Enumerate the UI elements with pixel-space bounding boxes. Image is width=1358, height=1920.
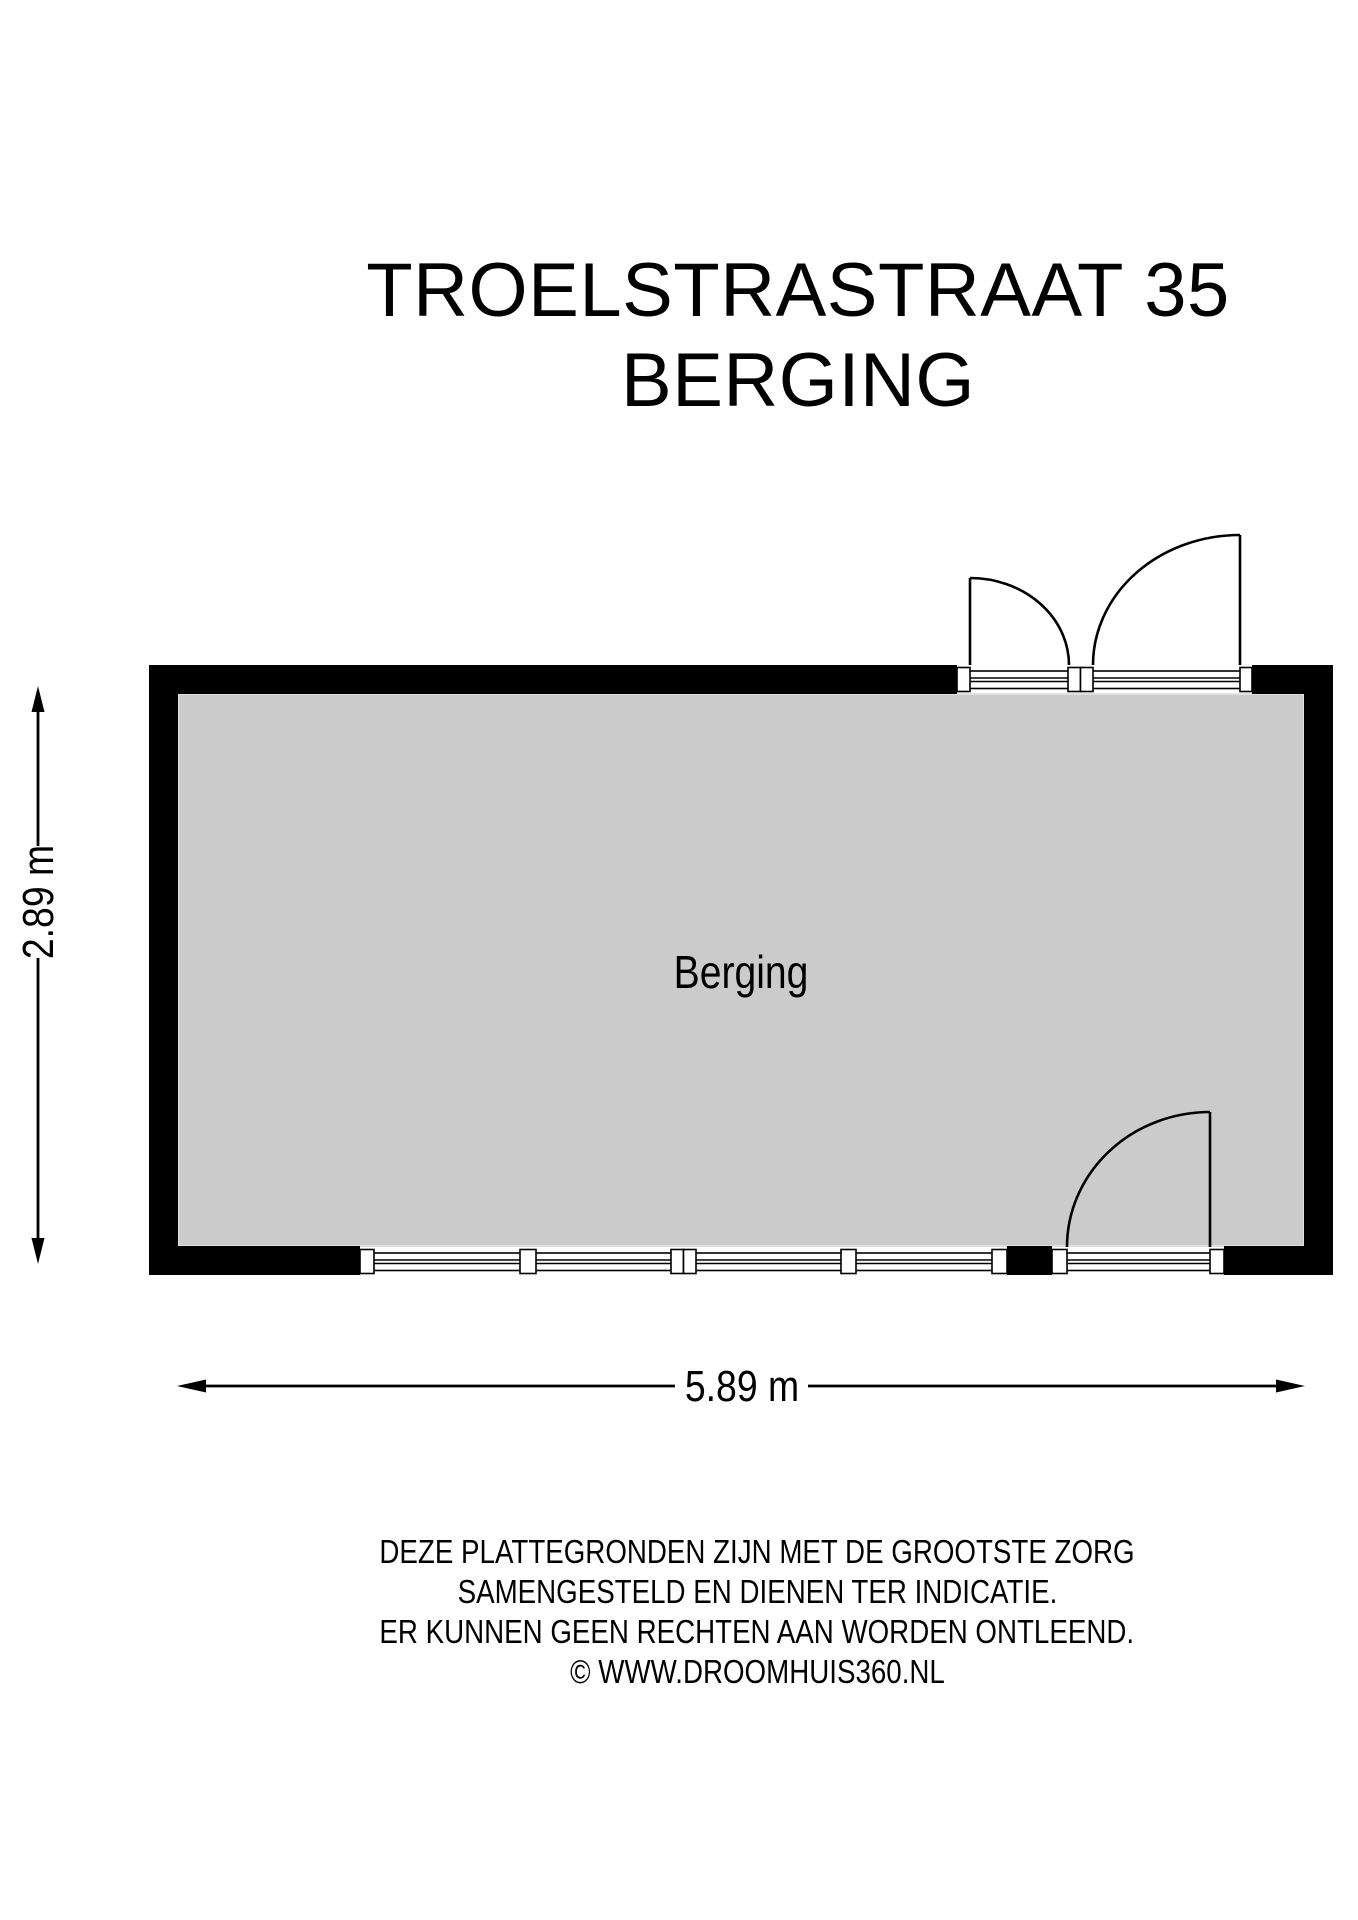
window-jamb (360, 1250, 374, 1274)
wall-bottom-middle-segment (1007, 1246, 1052, 1275)
disclaimer-line: DEZE PLATTEGRONDEN ZIJN MET DE GROOTSTE … (307, 1532, 1206, 1572)
wall-right (1304, 665, 1333, 1275)
disclaimer: DEZE PLATTEGRONDEN ZIJN MET DE GROOTSTE … (307, 1532, 1206, 1692)
window-jamb (671, 1250, 684, 1274)
arrow-up-icon (32, 686, 45, 712)
room-label: Berging (674, 947, 809, 999)
arrow-right-icon (1276, 1380, 1305, 1393)
bottom-door-threshold (1052, 1253, 1224, 1271)
top-door-threshold (957, 671, 1252, 689)
disclaimer-line: ER KUNNEN GEEN RECHTEN AAN WORDEN ONTLEE… (307, 1612, 1206, 1652)
door-jamb (1240, 668, 1252, 692)
door-jamb (957, 668, 970, 692)
wall-left (149, 665, 178, 1275)
arrow-left-icon (177, 1380, 206, 1393)
door-jamb (1052, 1250, 1067, 1274)
disclaimer-text: SAMENGESTELD EN DIENEN TER INDICATIE. (457, 1572, 1057, 1612)
window-jamb (520, 1250, 536, 1274)
wall-bottom-right-segment (1224, 1246, 1333, 1275)
dimension-height (32, 686, 45, 1264)
door-jamb (1081, 668, 1094, 692)
floorplan-page: TROELSTRASTRAAT 35 BERGING (0, 0, 1358, 1920)
top-small-door-swing-arc (970, 578, 1069, 665)
dimension-height-label: 2.89 m (13, 845, 63, 959)
top-large-door-swing-arc (1093, 535, 1240, 665)
disclaimer-text: ER KUNNEN GEEN RECHTEN AAN WORDEN ONTLEE… (380, 1612, 1135, 1652)
bottom-window-band (360, 1250, 1007, 1274)
window-jamb (684, 1250, 697, 1274)
wall-bottom-left-segment (149, 1246, 360, 1275)
disclaimer-text: DEZE PLATTEGRONDEN ZIJN MET DE GROOTSTE … (379, 1532, 1134, 1572)
disclaimer-line: SAMENGESTELD EN DIENEN TER INDICATIE. (307, 1572, 1206, 1612)
arrow-down-icon (32, 1238, 45, 1264)
bottom-door-opening (1052, 1250, 1224, 1274)
window-jamb (841, 1250, 856, 1274)
door-jamb (1068, 668, 1081, 692)
top-door-opening (957, 668, 1252, 692)
window-jamb (992, 1250, 1007, 1274)
dimension-width-label: 5.89 m (685, 1361, 799, 1411)
door-jamb (1210, 1250, 1224, 1274)
wall-top-left-segment (149, 665, 957, 694)
disclaimer-text: © WWW.DROOMHUIS360.NL (570, 1652, 945, 1692)
disclaimer-line: © WWW.DROOMHUIS360.NL (307, 1652, 1206, 1692)
